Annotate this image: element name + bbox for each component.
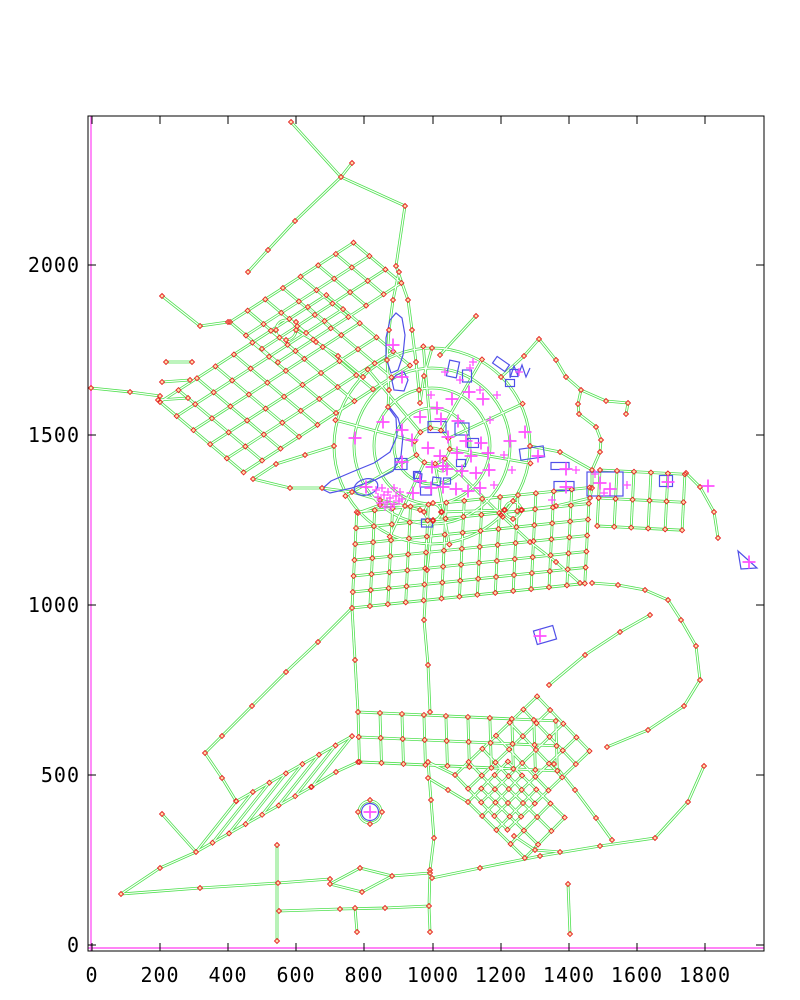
road-core xyxy=(686,473,700,487)
road-core xyxy=(396,266,420,403)
road xyxy=(121,852,196,894)
x-axis-tick-label: 1000 xyxy=(407,963,459,987)
road xyxy=(253,479,322,488)
road-core xyxy=(178,390,262,460)
x-axis-tick-label: 200 xyxy=(140,963,179,987)
road xyxy=(341,177,405,266)
road-core xyxy=(279,755,319,806)
road-core xyxy=(428,762,455,775)
road-core xyxy=(229,783,269,834)
x-axis-tick-label: 400 xyxy=(208,963,247,987)
road xyxy=(432,838,655,878)
road xyxy=(253,446,334,479)
road-core-layer xyxy=(91,122,718,941)
x-axis-tick-label: 0 xyxy=(85,963,98,987)
road-core xyxy=(197,378,281,448)
road xyxy=(549,615,650,685)
x-axis-tick-label: 800 xyxy=(344,963,383,987)
road-core xyxy=(213,792,253,843)
road-core xyxy=(160,402,244,472)
road-core xyxy=(234,354,318,424)
building-outline xyxy=(533,626,556,645)
map-canvas[interactable]: 0200400600800100012001400160018000500100… xyxy=(0,0,800,1000)
road xyxy=(248,122,341,272)
road-core xyxy=(196,801,236,852)
road-core xyxy=(162,296,228,326)
x-axis-tick-label: 1400 xyxy=(543,963,595,987)
x-axis-tick-label: 1800 xyxy=(679,963,731,987)
road-casing-layer xyxy=(91,122,718,941)
road-core xyxy=(599,498,684,502)
road-core xyxy=(262,764,302,815)
y-axis-tick-label: 1000 xyxy=(28,593,80,617)
y-axis-tick-label: 0 xyxy=(67,933,80,957)
road xyxy=(396,266,420,403)
road-core xyxy=(248,122,341,272)
road-core xyxy=(592,583,700,747)
road-core xyxy=(549,615,650,685)
x-axis-tick-label: 600 xyxy=(276,963,315,987)
map-viewer-window: 0200400600800100012001400160018000500100… xyxy=(0,0,800,1000)
road-core xyxy=(597,526,682,530)
road xyxy=(330,868,392,892)
road-core xyxy=(655,766,704,838)
road-core xyxy=(215,366,299,436)
building-outline xyxy=(446,360,459,378)
road-core xyxy=(162,814,196,852)
node-markers xyxy=(89,120,721,944)
road xyxy=(655,766,704,838)
road-core xyxy=(312,736,352,787)
road-core xyxy=(121,879,330,894)
x-axis-tick-label: 1200 xyxy=(475,963,527,987)
road-core xyxy=(295,745,335,796)
x-axis-tick-label: 1600 xyxy=(611,963,663,987)
road-core xyxy=(341,163,352,177)
road-core xyxy=(91,388,160,396)
landmark-triangle xyxy=(738,551,757,569)
road xyxy=(592,583,700,747)
axes-layer: 0200400600800100012001400160018000500100… xyxy=(28,116,764,987)
road-core xyxy=(360,762,558,771)
y-axis-tick-label: 2000 xyxy=(28,253,80,277)
y-axis-tick-label: 1500 xyxy=(28,423,80,447)
road-core xyxy=(246,773,286,824)
y-axis-tick-label: 500 xyxy=(41,763,80,787)
